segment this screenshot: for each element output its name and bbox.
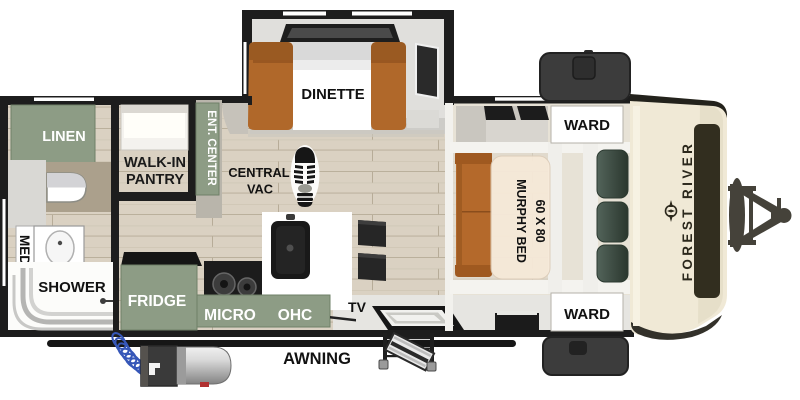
svg-text:DINETTE: DINETTE	[301, 87, 364, 103]
svg-text:FRIDGE: FRIDGE	[128, 293, 187, 310]
svg-text:SHOWER: SHOWER	[38, 279, 106, 296]
svg-text:FOREST RIVER: FOREST RIVER	[680, 141, 695, 282]
svg-text:CENTRAL: CENTRAL	[228, 165, 289, 180]
svg-text:VAC: VAC	[247, 182, 273, 197]
svg-text:LINEN: LINEN	[42, 129, 86, 145]
svg-text:ENT. CENTER: ENT. CENTER	[205, 110, 217, 186]
svg-text:OHC: OHC	[278, 307, 312, 324]
svg-text:MURPHY BED: MURPHY BED	[514, 179, 528, 263]
svg-text:MED: MED	[17, 235, 32, 265]
svg-text:WARD: WARD	[564, 117, 610, 134]
svg-text:WALK-IN: WALK-IN	[124, 155, 186, 171]
svg-text:WARD: WARD	[564, 306, 610, 323]
svg-text:PANTRY: PANTRY	[126, 172, 184, 188]
svg-text:60 X 80: 60 X 80	[533, 199, 547, 242]
svg-text:TV: TV	[348, 299, 367, 315]
svg-text:MICRO: MICRO	[204, 307, 256, 324]
svg-text:AWNING: AWNING	[283, 350, 351, 368]
